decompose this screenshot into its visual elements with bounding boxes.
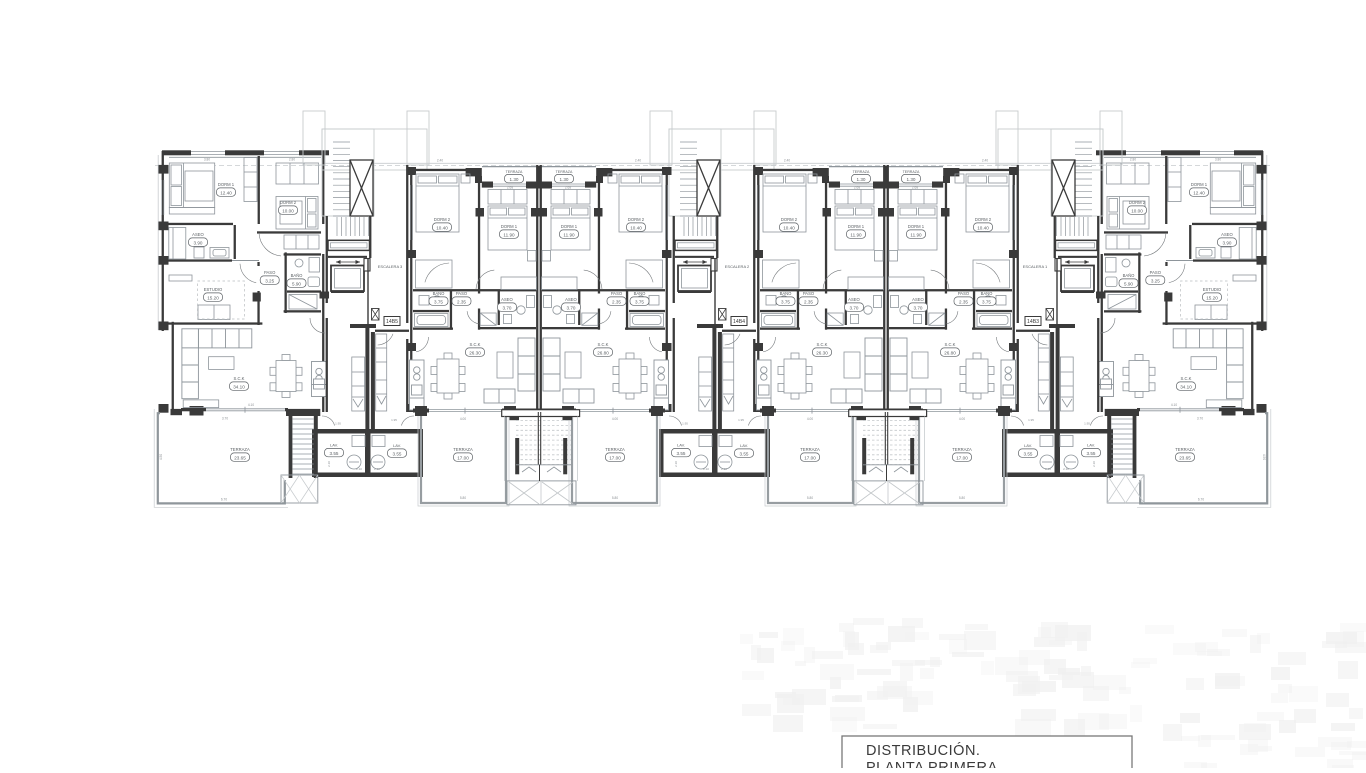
svg-text:10.40: 10.40: [783, 225, 795, 230]
svg-text:3.55: 3.55: [330, 451, 339, 456]
svg-text:PLANTA PRIMERA: PLANTA PRIMERA: [866, 760, 998, 768]
svg-text:BAÑO: BAÑO: [780, 291, 793, 296]
svg-text:1.95: 1.95: [391, 418, 397, 422]
svg-text:1.95: 1.95: [1028, 418, 1034, 422]
svg-text:ASEO: ASEO: [192, 232, 204, 237]
svg-text:15.20: 15.20: [207, 295, 219, 300]
svg-text:3.70: 3.70: [914, 305, 923, 310]
svg-text:DORM 1: DORM 1: [501, 224, 518, 229]
svg-text:LAV.: LAV.: [330, 443, 338, 448]
svg-text:PASO: PASO: [803, 291, 815, 296]
svg-text:DORM 2: DORM 2: [1129, 200, 1146, 205]
svg-text:2.80: 2.80: [289, 157, 295, 161]
svg-text:2.10: 2.10: [721, 467, 727, 471]
svg-text:LAV.: LAV.: [1087, 443, 1095, 448]
svg-text:3.90: 3.90: [1223, 240, 1232, 245]
svg-text:ESTUDIO: ESTUDIO: [1203, 287, 1222, 292]
svg-text:ESCALERA 3: ESCALERA 3: [378, 264, 403, 269]
svg-text:4.10: 4.10: [1171, 403, 1177, 407]
svg-text:5.90: 5.90: [1124, 281, 1133, 286]
svg-text:11.90: 11.90: [503, 232, 515, 237]
svg-text:2.35: 2.35: [457, 299, 466, 304]
svg-text:DORM 2: DORM 2: [781, 217, 798, 222]
svg-text:BAÑO: BAÑO: [1123, 273, 1136, 278]
svg-text:TERRAZA: TERRAZA: [1175, 447, 1195, 452]
svg-text:26.30: 26.30: [469, 350, 481, 355]
svg-text:4.00: 4.00: [807, 417, 813, 421]
svg-text:LAV.: LAV.: [393, 443, 401, 448]
svg-text:DORM 1: DORM 1: [561, 224, 578, 229]
svg-text:DORM 1: DORM 1: [908, 224, 925, 229]
svg-text:1.30: 1.30: [510, 177, 519, 182]
svg-text:S.C.K: S.C.K: [1181, 376, 1192, 381]
svg-text:2.40: 2.40: [784, 159, 790, 163]
svg-text:S.C.K: S.C.K: [598, 342, 609, 347]
svg-text:5.80: 5.80: [959, 496, 965, 500]
svg-text:1.95: 1.95: [1084, 422, 1090, 426]
svg-text:5.80: 5.80: [612, 496, 618, 500]
svg-text:34.10: 34.10: [1180, 384, 1192, 389]
svg-text:TERRAZA: TERRAZA: [230, 447, 250, 452]
svg-text:ASEO: ASEO: [501, 297, 513, 302]
svg-text:2.10: 2.10: [327, 461, 331, 467]
svg-text:23.65: 23.65: [234, 455, 246, 460]
svg-text:2.10: 2.10: [674, 461, 678, 467]
svg-text:3.75: 3.75: [781, 299, 790, 304]
svg-text:11.90: 11.90: [563, 232, 575, 237]
svg-text:2.10: 2.10: [1092, 461, 1096, 467]
svg-text:3.55: 3.55: [1024, 451, 1033, 456]
svg-text:10.40: 10.40: [977, 225, 989, 230]
svg-text:3.70: 3.70: [503, 305, 512, 310]
svg-text:3.25: 3.25: [1151, 278, 1160, 283]
svg-text:ASEO: ASEO: [848, 297, 860, 302]
svg-text:2.10: 2.10: [356, 467, 362, 471]
svg-text:2.40: 2.40: [982, 159, 988, 163]
svg-text:15.20: 15.20: [1206, 295, 1218, 300]
svg-text:6.70: 6.70: [1198, 498, 1204, 502]
svg-text:3.70: 3.70: [1197, 417, 1203, 421]
svg-text:DORM 1: DORM 1: [848, 224, 865, 229]
svg-text:17.00: 17.00: [804, 455, 816, 460]
svg-text:4.10: 4.10: [248, 403, 254, 407]
svg-text:S.C.K: S.C.K: [817, 342, 828, 347]
svg-text:S.C.K: S.C.K: [470, 342, 481, 347]
svg-text:14B5: 14B5: [386, 319, 398, 325]
svg-text:1.95: 1.95: [682, 422, 688, 426]
svg-text:3.70: 3.70: [567, 305, 576, 310]
svg-text:3.25: 3.25: [265, 278, 274, 283]
svg-text:26.30: 26.30: [816, 350, 828, 355]
svg-text:14B3: 14B3: [1027, 319, 1039, 325]
svg-text:TERRAZA: TERRAZA: [952, 447, 972, 452]
svg-text:12.40: 12.40: [1193, 190, 1205, 195]
svg-text:ASEO: ASEO: [565, 297, 577, 302]
svg-text:5.80: 5.80: [807, 496, 813, 500]
svg-text:S.C.K: S.C.K: [234, 376, 245, 381]
svg-text:10.00: 10.00: [1131, 208, 1143, 213]
svg-text:3.80: 3.80: [204, 157, 210, 161]
svg-text:6.70: 6.70: [221, 498, 227, 502]
svg-text:PASO: PASO: [1150, 270, 1162, 275]
svg-text:4.00: 4.00: [959, 417, 965, 421]
svg-text:TERRAZA: TERRAZA: [506, 170, 523, 174]
svg-text:11.90: 11.90: [910, 232, 922, 237]
svg-text:TERRAZA: TERRAZA: [556, 170, 573, 174]
svg-text:17.00: 17.00: [956, 455, 968, 460]
svg-text:3.75: 3.75: [434, 299, 443, 304]
svg-text:DORM 1: DORM 1: [1191, 182, 1208, 187]
svg-text:2.68: 2.68: [507, 186, 513, 190]
svg-text:2.10: 2.10: [374, 467, 380, 471]
svg-text:BAÑO: BAÑO: [981, 291, 994, 296]
svg-text:LAV.: LAV.: [1024, 443, 1032, 448]
svg-text:BAÑO: BAÑO: [291, 273, 304, 278]
svg-text:DORM 2: DORM 2: [280, 200, 297, 205]
svg-text:14B4: 14B4: [733, 319, 745, 325]
svg-text:1.30: 1.30: [560, 177, 569, 182]
svg-text:3.80: 3.80: [1215, 157, 1221, 161]
svg-text:2.68: 2.68: [565, 186, 571, 190]
svg-text:DISTRIBUCIÓN.: DISTRIBUCIÓN.: [866, 742, 980, 759]
svg-text:26.80: 26.80: [944, 350, 956, 355]
svg-text:TERRAZA: TERRAZA: [853, 170, 870, 174]
svg-text:BAÑO: BAÑO: [433, 291, 446, 296]
svg-text:17.00: 17.00: [457, 455, 469, 460]
svg-text:34.10: 34.10: [233, 384, 245, 389]
svg-text:DORM 2: DORM 2: [975, 217, 992, 222]
svg-text:1.95: 1.95: [335, 422, 341, 426]
svg-text:2.40: 2.40: [635, 159, 641, 163]
svg-text:DORM 2: DORM 2: [434, 217, 451, 222]
svg-text:3.55: 3.55: [393, 451, 402, 456]
svg-text:ESCALERA 2: ESCALERA 2: [725, 264, 750, 269]
svg-text:2.35: 2.35: [804, 299, 813, 304]
svg-text:2.35: 2.35: [612, 299, 621, 304]
svg-text:2.10: 2.10: [703, 467, 709, 471]
svg-text:3.90: 3.90: [194, 240, 203, 245]
svg-text:2.10: 2.10: [1063, 467, 1069, 471]
svg-text:4.00: 4.00: [612, 417, 618, 421]
svg-text:11.90: 11.90: [850, 232, 862, 237]
svg-text:3.70: 3.70: [850, 305, 859, 310]
svg-text:PASO: PASO: [611, 291, 623, 296]
svg-text:3.75: 3.75: [635, 299, 644, 304]
svg-text:1.30: 1.30: [857, 177, 866, 182]
svg-text:DORM 1: DORM 1: [218, 182, 235, 187]
svg-text:10.40: 10.40: [630, 225, 642, 230]
svg-text:4.00: 4.00: [460, 417, 466, 421]
svg-text:26.80: 26.80: [597, 350, 609, 355]
svg-text:17.00: 17.00: [609, 455, 621, 460]
svg-text:2.68: 2.68: [854, 186, 860, 190]
svg-text:2.80: 2.80: [1130, 157, 1136, 161]
svg-text:3.55: 3.55: [740, 451, 749, 456]
svg-text:10.40: 10.40: [436, 225, 448, 230]
svg-text:2.68: 2.68: [912, 186, 918, 190]
svg-text:2.10: 2.10: [1045, 467, 1051, 471]
svg-text:23.65: 23.65: [1179, 455, 1191, 460]
svg-text:PASO: PASO: [958, 291, 970, 296]
svg-text:S.C.K: S.C.K: [945, 342, 956, 347]
svg-text:ESCALERA 1: ESCALERA 1: [1023, 264, 1048, 269]
svg-text:TERRAZA: TERRAZA: [800, 447, 820, 452]
svg-text:1.95: 1.95: [738, 418, 744, 422]
svg-text:LAV.: LAV.: [740, 443, 748, 448]
svg-text:PASO: PASO: [264, 270, 276, 275]
svg-text:LAV.: LAV.: [677, 443, 685, 448]
svg-text:5.80: 5.80: [460, 496, 466, 500]
svg-text:2.40: 2.40: [437, 159, 443, 163]
svg-text:3.75: 3.75: [982, 299, 991, 304]
svg-text:3.55: 3.55: [677, 451, 686, 456]
svg-text:3.70: 3.70: [222, 417, 228, 421]
svg-text:ASEO: ASEO: [1221, 232, 1233, 237]
svg-text:DORM 2: DORM 2: [628, 217, 645, 222]
svg-text:PASO: PASO: [456, 291, 468, 296]
svg-text:ESTUDIO: ESTUDIO: [204, 287, 223, 292]
svg-text:5.90: 5.90: [292, 281, 301, 286]
svg-text:2.35: 2.35: [959, 299, 968, 304]
svg-text:4.50: 4.50: [1262, 454, 1266, 460]
svg-text:1.30: 1.30: [907, 177, 916, 182]
svg-text:12.40: 12.40: [220, 190, 232, 195]
svg-text:10.00: 10.00: [282, 208, 294, 213]
svg-text:TERRAZA: TERRAZA: [903, 170, 920, 174]
svg-text:ASEO: ASEO: [912, 297, 924, 302]
svg-text:TERRAZA: TERRAZA: [453, 447, 473, 452]
svg-text:BAÑO: BAÑO: [634, 291, 647, 296]
svg-text:3.55: 3.55: [1087, 451, 1096, 456]
svg-text:TERRAZA: TERRAZA: [605, 447, 625, 452]
svg-text:4.50: 4.50: [159, 454, 163, 460]
